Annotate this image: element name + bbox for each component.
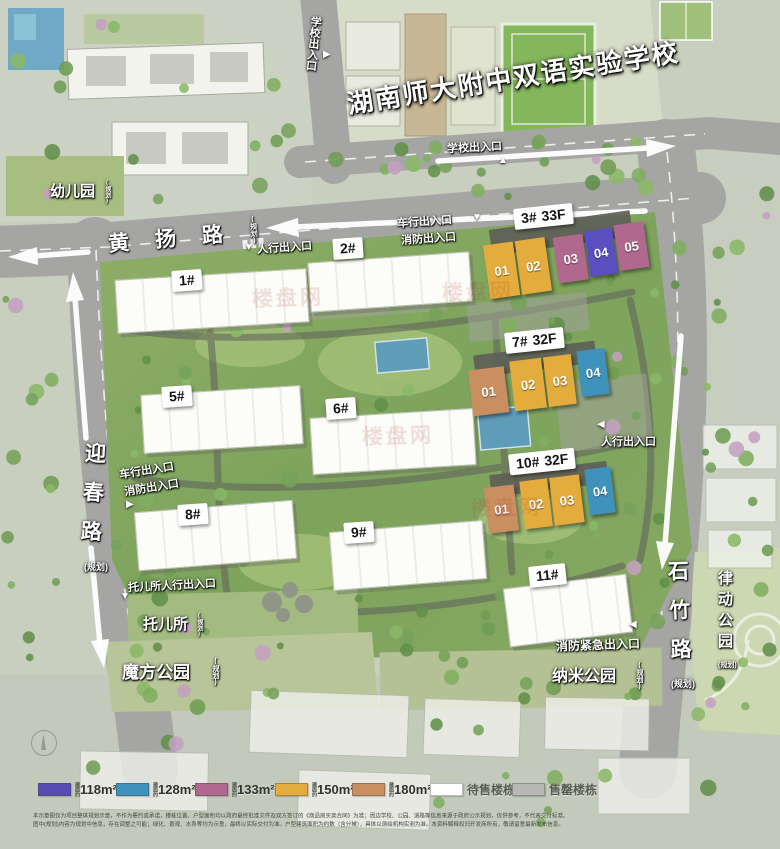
watermark: 楼盘网: [251, 281, 324, 313]
building-6-number: 6#: [332, 399, 349, 416]
legend-swatch-forsale: [430, 783, 463, 796]
building-9-number: 9#: [350, 523, 367, 540]
legend-item-118: 建面约 118m²: [38, 781, 117, 797]
mofang-park-tag: (规划): [212, 658, 219, 686]
unit-7-02: 02: [509, 358, 547, 412]
legend-item-128: 建面约 128m²: [116, 781, 196, 797]
unit-3-05: 05: [613, 221, 649, 271]
watermark: 楼盘网: [469, 491, 542, 523]
unit-7-04: 04: [576, 348, 609, 397]
legend-item-150: 建面约 150m²: [275, 781, 355, 797]
vehicle-west-marker-icon: ▶: [126, 500, 134, 510]
legend-swatch-soldout: [512, 783, 545, 796]
building-label-6: 6#: [325, 397, 356, 420]
site-plan: 01 02 03 04 05 01 02 03 04 01 02 03 04 1…: [0, 0, 780, 849]
unit-7-03: 03: [543, 354, 577, 407]
nursery-label: 托儿所: [143, 613, 188, 634]
legend-label-soldout: 售罄楼栋: [549, 781, 597, 798]
building-3-floors: 33F: [541, 206, 567, 224]
road-yingchun-tag: (规划): [84, 560, 108, 573]
legend-item-180: 建面约 180m²: [352, 781, 432, 797]
ped-north-marker-icon: ▼: [244, 243, 254, 253]
building-11-number: 11#: [535, 566, 559, 584]
nursery-ped-marker-icon: ▼: [120, 592, 130, 602]
road-yingchun: 迎春路: [73, 441, 109, 559]
building-5-number: 5#: [168, 387, 185, 404]
school-gate-west-marker-icon: ▶: [323, 50, 331, 60]
unit-10-04: 04: [584, 467, 615, 516]
legend-swatch-180: [352, 783, 385, 796]
kindergarten-label: 幼儿园: [50, 180, 95, 201]
legend-label-128: 128m²: [158, 782, 196, 797]
kindergarten-tag: (规划): [104, 180, 110, 204]
unit-7-01: 01: [468, 366, 509, 416]
road-shizhu: 石竹路: [661, 560, 695, 678]
nami-park-tag: (规划): [636, 662, 643, 690]
ped-east-marker-icon: ◀: [597, 420, 605, 430]
disclaimer-line2: 图中(规划)内容为规划中信息，存在调整之可能；绿化、景观、水系等均为示意，最终以…: [33, 821, 688, 829]
legend-prefix: 建面约: [311, 782, 316, 797]
building-10-number: 10#: [515, 453, 540, 471]
building-label-2: 2#: [332, 237, 363, 260]
lvdong-park-tag: (规划): [718, 660, 737, 670]
legend-item-soldout: 售罄楼栋: [512, 781, 597, 797]
building-1-number: 1#: [178, 271, 195, 288]
building-2-number: 2#: [339, 239, 356, 256]
road-shizhu-tag: (规划): [671, 677, 695, 690]
legend-prefix: 建面约: [231, 782, 236, 797]
school-gate-south-marker-icon: ▲: [498, 156, 508, 166]
nursery-tag: (规划): [196, 613, 202, 637]
building-label-9: 9#: [343, 521, 374, 544]
nami-park-label: 纳米公园: [552, 662, 616, 686]
legend-swatch-133: [195, 783, 228, 796]
fire-emergency-marker-icon: ◀: [629, 620, 637, 630]
building-3-number: 3#: [520, 209, 537, 227]
building-7-number: 7#: [511, 333, 528, 351]
mofang-park-label: 魔方公园: [122, 658, 190, 683]
legend-swatch-118: [38, 783, 71, 796]
unit-3-03: 03: [553, 234, 589, 284]
fire-emergency-exit: 消防紧急出入口: [556, 635, 641, 655]
school-gate-south-label: 学校出入口: [447, 138, 503, 157]
disclaimer-line1: 本示意图仅为项目整体规划示意，不作为要约或承诺，楼栋位置、户型面积均以政府最终批…: [33, 813, 688, 821]
unit-3-02: 02: [515, 237, 552, 295]
building-10-floors: 32F: [543, 450, 569, 468]
legend-prefix: 建面约: [388, 782, 393, 797]
unit-10-03: 03: [549, 474, 585, 525]
building-label-5: 5#: [161, 385, 192, 408]
watermark: 楼盘网: [441, 275, 514, 307]
legend-item-forsale: 待售楼栋: [430, 781, 515, 797]
unit-3-04: 04: [584, 228, 618, 277]
building-label-8: 8#: [177, 503, 208, 526]
lvdong-park-label: 律动公园: [714, 570, 735, 654]
watermark: 楼盘网: [361, 419, 434, 451]
legend-label-forsale: 待售楼栋: [467, 781, 515, 798]
disclaimer: 本示意图仅为项目整体规划示意，不作为要约或承诺，楼栋位置、户型面积均以政府最终批…: [33, 813, 688, 829]
building-8-footprint: [134, 500, 297, 571]
legend-label-150: 150m²: [317, 782, 355, 797]
compass-icon: [30, 722, 58, 760]
building-label-11: 11#: [528, 563, 567, 588]
legend-label-118: 118m²: [80, 782, 117, 797]
vehicle-north-marker-icon: ▼: [472, 213, 482, 223]
legend-prefix: 建面约: [152, 782, 157, 797]
legend-prefix: 建面约: [74, 782, 79, 797]
building-7-floors: 32F: [532, 330, 558, 348]
legend-label-133: 133m²: [237, 782, 275, 797]
legend-item-133: 建面约 133m²: [195, 781, 275, 797]
building-8-number: 8#: [184, 505, 201, 522]
building-label-1: 1#: [171, 269, 202, 292]
legend-swatch-150: [275, 783, 308, 796]
ped-east-entrance: 人行出入口: [601, 433, 656, 449]
legend-label-180: 180m²: [394, 782, 432, 797]
legend-swatch-128: [116, 783, 149, 796]
